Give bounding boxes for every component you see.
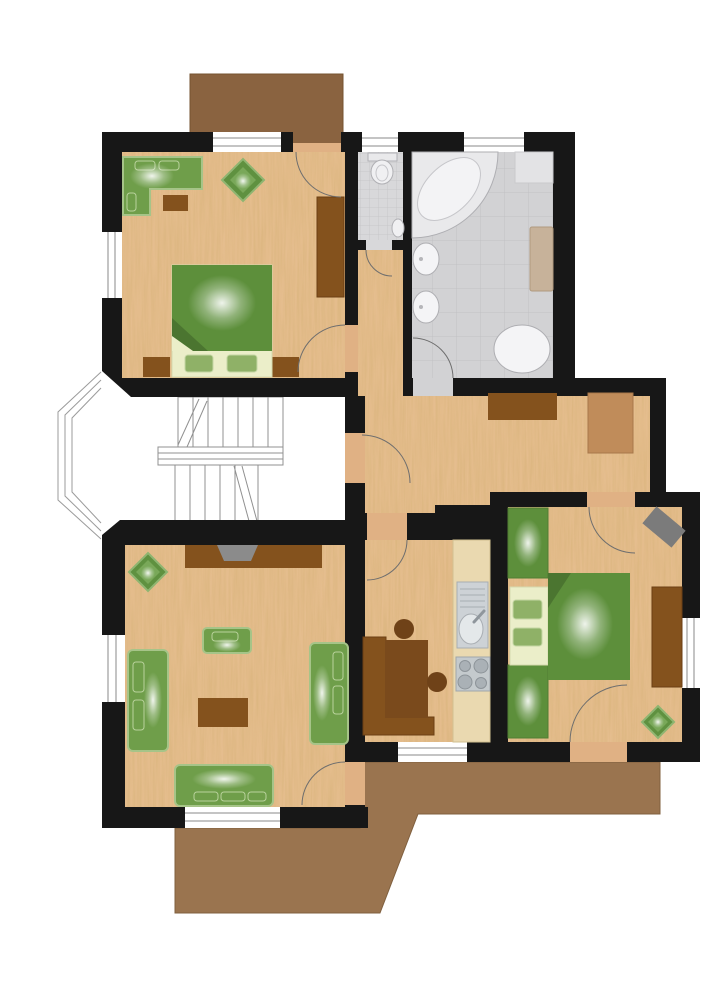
bed-blanket-highlight (188, 275, 256, 331)
sink-basin (459, 614, 483, 644)
bath-radiator (530, 227, 553, 291)
window-bathroom-top (464, 132, 524, 152)
window-glass (682, 618, 700, 688)
balcony-door-opening-slab (293, 132, 341, 143)
side-table (163, 195, 188, 211)
bed-pillow (513, 628, 542, 646)
tv (217, 545, 258, 561)
wardrobe (317, 197, 344, 297)
wardrobe (652, 587, 682, 687)
window-living-bottom (185, 807, 280, 828)
stove-burner (460, 661, 471, 672)
window-wc-top (362, 132, 398, 152)
stove-burner (474, 659, 488, 673)
diamond-armchair-highlight (141, 566, 155, 580)
bay-window (58, 372, 101, 539)
wc-door-opening (366, 240, 392, 250)
diamond-armchair-highlight (235, 173, 251, 189)
window-kitchen-bottom (398, 742, 467, 762)
bed-pillow (227, 355, 257, 372)
window-bedroom2-right (682, 618, 700, 688)
loveseat-highlight (213, 638, 241, 652)
hall-wardrobe (588, 393, 633, 453)
stair-lower-flight (175, 465, 258, 522)
bed-blanket-highlight (557, 588, 613, 660)
stove-burner (458, 675, 472, 689)
wall-wc-door-stub-left (358, 240, 366, 250)
wall-wc-right (403, 132, 412, 396)
stair-upper-flight (178, 397, 283, 447)
sofa-highlight (313, 665, 331, 721)
wall-kitchen-right (490, 492, 508, 762)
window-glass (185, 807, 280, 828)
stove-burner (476, 678, 487, 689)
bedroom2-door-opening (587, 492, 635, 507)
kitchen-stool (427, 672, 447, 692)
wall-wc-door-stub-right (392, 240, 403, 250)
window-living-left (102, 635, 125, 702)
bedroom2-terrace-door-opening (570, 742, 627, 762)
bedroom1-door-opening (345, 325, 358, 372)
window-glass (362, 132, 398, 152)
window-glass (102, 635, 125, 702)
bed-pillow (513, 600, 542, 619)
kitchen-table (385, 640, 428, 718)
nightstand (272, 357, 299, 377)
sofa-highlight (130, 163, 174, 189)
washbasin-drain (419, 257, 423, 261)
floor-plan-canvas: Apartment floor plan with furnished room… (0, 0, 724, 1000)
bed-platform (510, 587, 548, 665)
window-glass (398, 742, 467, 762)
wall-bath-right (553, 132, 575, 396)
wall-hall-right (650, 378, 666, 500)
nightstand (143, 357, 170, 377)
bay-window-glass (58, 372, 101, 539)
kitchen-stool (394, 619, 414, 639)
living-terrace-door-opening (345, 762, 365, 805)
shower-tray (494, 325, 550, 373)
rug-highlight (514, 676, 542, 726)
washbasin (413, 291, 439, 323)
window-glass (464, 132, 524, 152)
bed-pillow (185, 355, 213, 372)
balcony-door-opening (293, 143, 341, 152)
sofa-highlight (192, 769, 256, 789)
hall-sideboard (488, 393, 557, 420)
toilet-bowl (371, 160, 393, 184)
window-glass (102, 232, 122, 298)
rug-highlight (514, 519, 542, 567)
window-bedroom1-top (213, 132, 281, 152)
diamond-ottoman-highlight (652, 716, 664, 728)
wc-handbasin (392, 219, 404, 237)
floor-plan-page: Apartment floor plan with furnished room… (0, 0, 724, 1000)
window-bedroom1-left (102, 232, 122, 298)
washbasin-drain (419, 305, 423, 309)
washbasin (413, 243, 439, 275)
entrance-door-opening (345, 433, 365, 483)
kitchen-door-opening (367, 513, 407, 540)
sofa-highlight (144, 672, 162, 728)
stair-landing (158, 447, 283, 465)
window-glass (213, 132, 281, 152)
bathroom-door-opening (413, 378, 453, 396)
bath-shelf (515, 152, 553, 183)
coffee-table (198, 698, 248, 727)
